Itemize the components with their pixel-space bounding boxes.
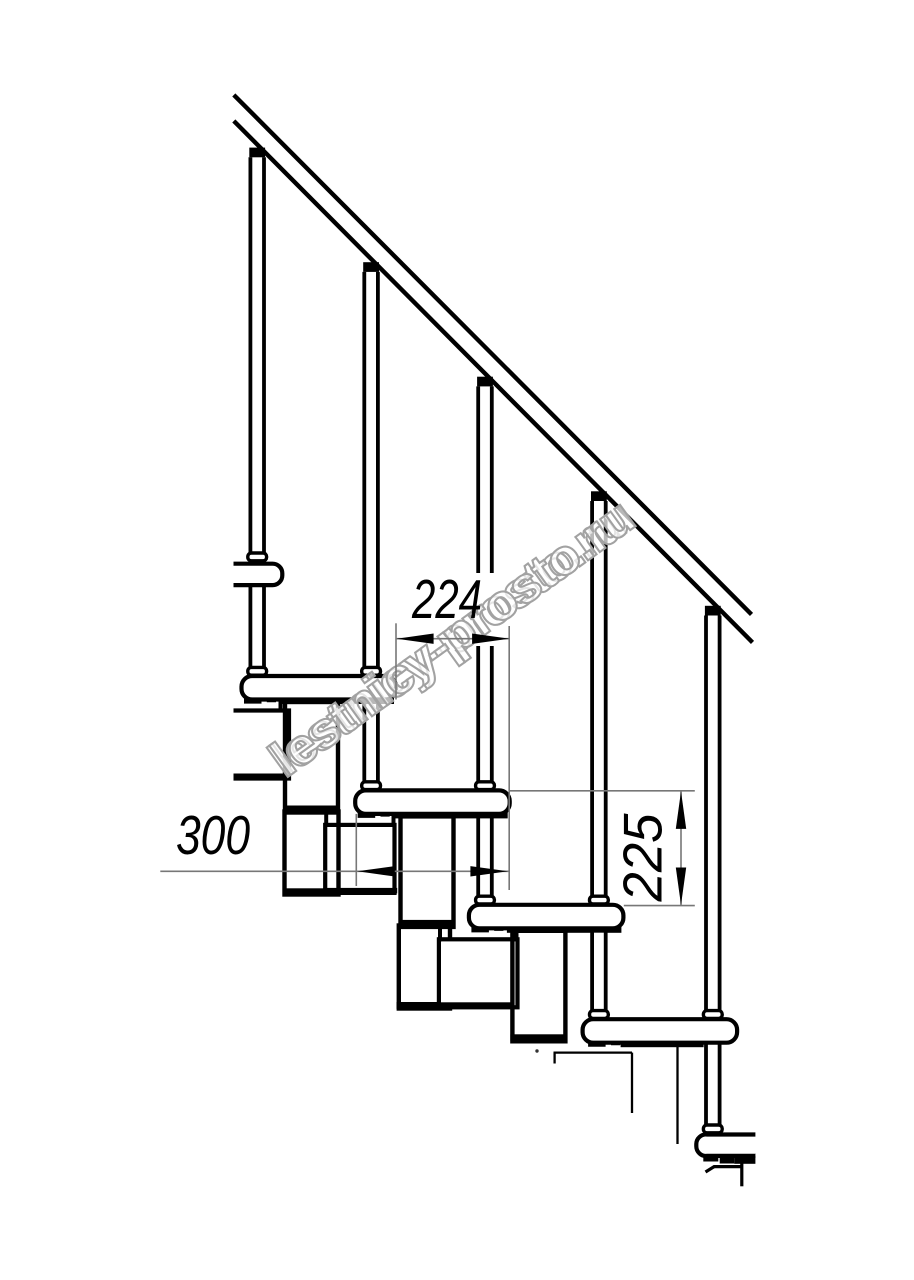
- svg-text:300: 300: [176, 804, 250, 866]
- svg-text:224: 224: [411, 568, 482, 630]
- svg-text:225: 225: [612, 813, 674, 902]
